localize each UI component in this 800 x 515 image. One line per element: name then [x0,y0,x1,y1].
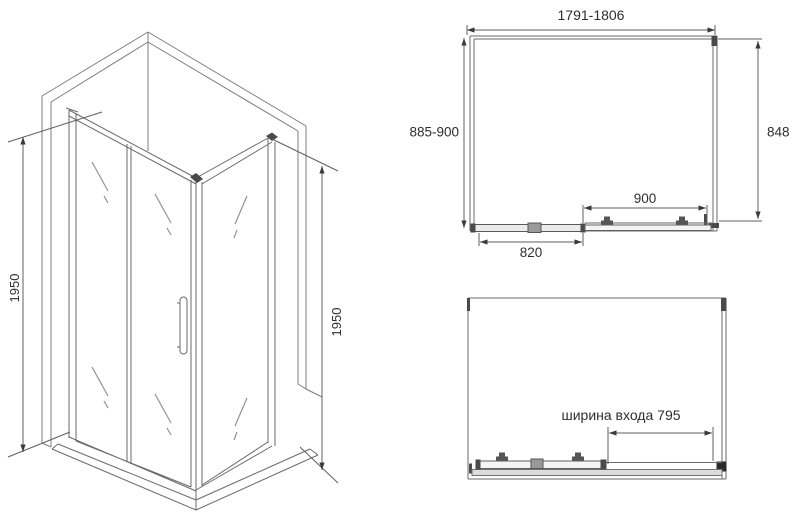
dimension-width-range: 1791-1806 [467,7,715,35]
roller [601,217,613,225]
top-plan-view: 1791-1806 885-900 848 900 [409,7,789,260]
back-walls [42,32,322,447]
bottom-rail-assembly-open [472,453,722,476]
bottom-rail-assembly [471,217,714,233]
panel-clamp [531,459,543,469]
door-handle [180,297,187,354]
panel-clamp [528,223,541,233]
door-end-cap [476,460,481,470]
arrow-right-icon [708,27,716,32]
dimension-depth-range: 885-900 [409,38,466,228]
dimension-side-depth: 848 [718,39,790,221]
arrow-down-icon [755,212,760,220]
label-width-range: 1791-1806 [558,7,625,23]
label-height-right: 1950 [329,308,344,337]
label-side-depth: 848 [767,125,790,140]
arrow-up-icon [461,38,466,46]
track-bar [472,470,722,476]
door-end-cap [601,460,607,470]
wall-profile-tick-right [721,298,727,311]
roller [496,453,508,461]
arrow-down-icon [461,221,466,229]
arrow-left-icon [609,430,617,435]
isometric-view: 1950 1950 [7,32,344,510]
drawing-canvas: 1950 1950 [0,0,800,515]
label-depth-range: 885-900 [409,125,459,140]
label-door-section: 900 [634,191,657,206]
fixed-panel-end-cap [471,224,476,233]
dimension-extension-lines [718,39,762,221]
dimension-height-left: 1950 [7,112,102,457]
plan-outline [468,298,726,479]
arrow-right-icon [705,430,713,435]
label-fixed-section: 820 [520,245,543,260]
technical-drawing: 1950 1950 [0,0,800,515]
door-panel-bar [585,225,711,231]
dimension-extension-lines [8,112,102,457]
wall-profile-tick-left [467,298,470,311]
arrow-left-icon [467,27,475,32]
plan-outline [470,36,717,231]
open-plan-view: ширина входа 795 [467,298,727,479]
roller [676,217,688,225]
door-stile [127,144,131,464]
arrow-left-icon [480,239,488,244]
arrow-down-icon [20,445,25,453]
arrow-up-icon [319,166,324,174]
dimension-door-section: 900 [583,191,707,223]
dimension-entrance-width: ширина входа 795 [561,407,713,464]
arrow-right-icon [575,239,583,244]
arrow-up-icon [755,41,760,49]
dimension-fixed-section: 820 [479,233,583,260]
sliding-door [127,144,187,464]
roller [572,453,584,461]
label-height-left: 1950 [7,274,22,303]
dimension-height-right: 1950 [272,139,344,483]
arrow-right-icon [699,205,707,210]
glass-reflection-marks [92,162,247,440]
label-entrance-width: ширина входа 795 [561,407,680,423]
arrow-left-icon [584,205,592,210]
wall-profile-cap [712,36,718,46]
